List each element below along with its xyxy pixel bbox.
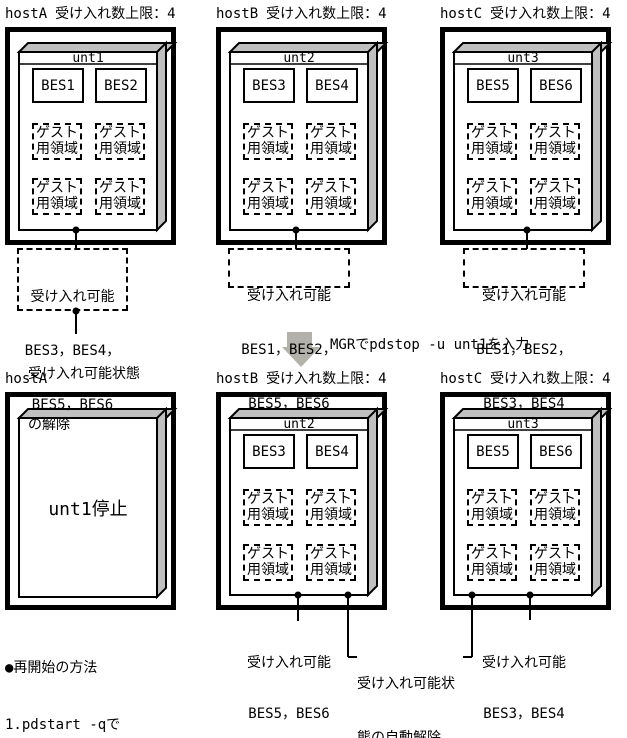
- guest-area-box: ゲスト用領域: [306, 544, 356, 581]
- bes-label: BES2: [104, 78, 138, 94]
- guest-area-box: ゲスト用領域: [530, 123, 580, 160]
- restart-note-line1: 1.pdstart -qで: [5, 716, 145, 735]
- callout-line2: BES5，BES6: [228, 706, 350, 723]
- auto-release-line1: 受け入れ可能状: [357, 675, 466, 693]
- guest-area-line2: 用領域: [469, 507, 515, 523]
- guest-area-box: ゲスト用領域: [530, 489, 580, 526]
- unit-name-unt3-top: unt3: [454, 52, 592, 65]
- guest-area-box: ゲスト用領域: [243, 123, 293, 160]
- top-hostA-label: hostA受け入れ数上限：4: [5, 6, 176, 23]
- capacity-label: 受け入れ数上限：4: [55, 6, 175, 22]
- acceptance-text-hostC-bottom: 受け入れ可能 BES3，BES4: [463, 621, 585, 738]
- guest-area-line1: ゲスト: [469, 546, 515, 562]
- guest-area-box: ゲスト用領域: [243, 489, 293, 526]
- guest-area-box: ゲスト用領域: [32, 123, 82, 160]
- guest-area-line1: ゲスト: [97, 125, 143, 141]
- guest-area-box: ゲスト用領域: [306, 178, 356, 215]
- guest-area-line2: 用領域: [34, 196, 80, 212]
- auto-release-note: 受け入れ可能状 態の自動解除 （BES1，BES2）: [357, 639, 466, 738]
- top-hostC-label: hostC受け入れ数上限：4: [440, 6, 611, 23]
- guest-area-line1: ゲスト: [308, 546, 354, 562]
- bes-label: BES4: [315, 444, 349, 460]
- guest-area-box: ゲスト用領域: [467, 489, 517, 526]
- guest-area-box: ゲスト用領域: [530, 178, 580, 215]
- guest-area-line1: ゲスト: [34, 180, 80, 196]
- guest-area-line2: 用領域: [469, 562, 515, 578]
- guest-area-box: ゲスト用領域: [306, 489, 356, 526]
- bes-label: BES5: [476, 444, 510, 460]
- host-name: hostC: [440, 6, 482, 22]
- bes-box-bes6: BES6: [530, 68, 582, 103]
- guest-area-box: ゲスト用領域: [530, 544, 580, 581]
- guest-area-line1: ゲスト: [97, 180, 143, 196]
- guest-area-line1: ゲスト: [532, 546, 578, 562]
- transition-command-text: MGRでpdstop -u unt1を入力: [330, 337, 529, 354]
- guest-area-line1: ゲスト: [532, 125, 578, 141]
- callout-line1: 受け入れ可能: [228, 655, 350, 672]
- guest-area-line1: ゲスト: [34, 125, 80, 141]
- guest-area-line1: ゲスト: [469, 491, 515, 507]
- host-name: hostA: [5, 6, 47, 22]
- guest-area-line1: ゲスト: [308, 491, 354, 507]
- guest-area-line2: 用領域: [532, 507, 578, 523]
- guest-area-line2: 用領域: [97, 196, 143, 212]
- unit-name-unt2-top: unt2: [230, 52, 368, 65]
- acceptance-text-hostB-bottom: 受け入れ可能 BES5，BES6: [228, 621, 350, 738]
- guest-area-line1: ゲスト: [532, 491, 578, 507]
- connector-top-hostC: [524, 227, 531, 250]
- guest-area-line2: 用領域: [245, 196, 291, 212]
- guest-area-line2: 用領域: [308, 196, 354, 212]
- callout-line1: 受け入れ可能: [228, 287, 350, 305]
- bes-box-bes3: BES3: [243, 68, 295, 103]
- bes-label: BES3: [252, 78, 286, 94]
- bes-box-bes5: BES5: [467, 68, 519, 103]
- callout-line1: 受け入れ可能: [463, 655, 585, 672]
- guest-area-line2: 用領域: [34, 141, 80, 157]
- bes-label: BES6: [539, 78, 573, 94]
- guest-area-box: ゲスト用領域: [467, 178, 517, 215]
- capacity-label: 受け入れ数上限：4: [490, 6, 610, 22]
- bes-label: BES4: [315, 78, 349, 94]
- guest-area-line2: 用領域: [245, 141, 291, 157]
- bes-label: BES1: [41, 78, 75, 94]
- guest-area-line1: ゲスト: [469, 125, 515, 141]
- guest-area-line2: 用領域: [308, 141, 354, 157]
- auto-release-line2: 態の自動解除: [357, 729, 466, 738]
- bes-label: BES5: [476, 78, 510, 94]
- unit-name-unt1-top: unt1: [19, 52, 157, 65]
- callout-line3: BES5，BES6: [228, 395, 350, 413]
- guest-area-line2: 用領域: [245, 562, 291, 578]
- bes-box-bes1: BES1: [32, 68, 84, 103]
- callout-line3: BES3，BES4: [463, 395, 585, 413]
- guest-area-line2: 用領域: [532, 562, 578, 578]
- guest-area-line2: 用領域: [97, 141, 143, 157]
- capacity-label: 受け入れ数上限：4: [266, 6, 386, 22]
- guest-area-line2: 用領域: [532, 141, 578, 157]
- bes-box-bes5-bottom: BES5: [467, 434, 519, 469]
- restart-note-title: ●再開始の方法: [5, 659, 145, 678]
- bes-box-bes4: BES4: [306, 68, 358, 103]
- guest-area-box: ゲスト用領域: [306, 123, 356, 160]
- release-note-line1: 受け入れ可能状態: [28, 366, 140, 383]
- guest-area-box: ゲスト用領域: [95, 178, 145, 215]
- callout-line2: BES3，BES4: [463, 706, 585, 723]
- guest-area-line1: ゲスト: [245, 125, 291, 141]
- guest-area-line1: ゲスト: [245, 491, 291, 507]
- top-hostB-label: hostB受け入れ数上限：4: [216, 6, 387, 23]
- bes-box-bes2: BES2: [95, 68, 147, 103]
- guest-area-line2: 用領域: [469, 196, 515, 212]
- host-name: hostB: [216, 6, 258, 22]
- guest-area-line1: ゲスト: [245, 546, 291, 562]
- guest-area-line1: ゲスト: [308, 125, 354, 141]
- bes-box-bes6-bottom: BES6: [530, 434, 582, 469]
- guest-area-line1: ゲスト: [308, 180, 354, 196]
- guest-area-line1: ゲスト: [469, 180, 515, 196]
- bes-box-bes4-bottom: BES4: [306, 434, 358, 469]
- guest-area-line1: ゲスト: [245, 180, 291, 196]
- diagram-canvas: hostA受け入れ数上限：4 hostB受け入れ数上限：4 hostC受け入れ数…: [0, 0, 627, 738]
- guest-area-box: ゲスト用領域: [243, 178, 293, 215]
- connector-top-hostB: [293, 227, 300, 250]
- bes-label: BES3: [252, 444, 286, 460]
- guest-area-box: ゲスト用領域: [243, 544, 293, 581]
- guest-area-line2: 用領域: [308, 507, 354, 523]
- guest-area-box: ゲスト用領域: [467, 123, 517, 160]
- guest-area-box: ゲスト用領域: [467, 544, 517, 581]
- stopped-unit-text: unt1停止: [19, 418, 157, 597]
- guest-area-box: ゲスト用領域: [32, 178, 82, 215]
- guest-area-line2: 用領域: [469, 141, 515, 157]
- bes-box-bes3-bottom: BES3: [243, 434, 295, 469]
- callout-line1: 受け入れ可能: [463, 287, 585, 305]
- guest-area-line2: 用領域: [308, 562, 354, 578]
- guest-area-box: ゲスト用領域: [95, 123, 145, 160]
- guest-area-line2: 用領域: [532, 196, 578, 212]
- guest-area-line1: ゲスト: [532, 180, 578, 196]
- callout-line1: 受け入れ可能: [17, 288, 128, 306]
- bes-label: BES6: [539, 444, 573, 460]
- restart-note: ●再開始の方法 1.pdstart -qで ユニット起動 2.pdstart -…: [5, 621, 145, 738]
- guest-area-line2: 用領域: [245, 507, 291, 523]
